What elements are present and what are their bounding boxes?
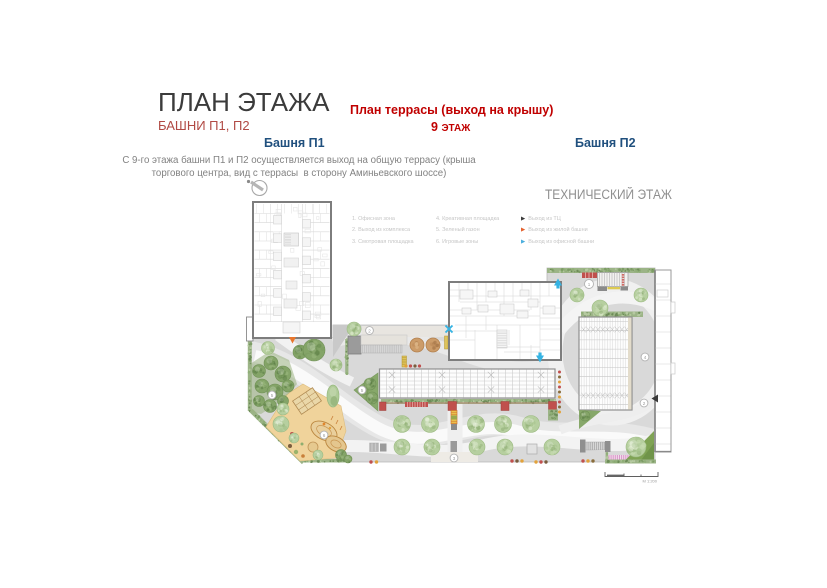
svg-text:2: 2 <box>368 328 371 333</box>
svg-text:4: 4 <box>644 355 647 360</box>
svg-text:М 1:200: М 1:200 <box>643 479 658 484</box>
svg-text:5: 5 <box>361 388 364 393</box>
svg-text:5: 5 <box>271 393 274 398</box>
svg-text:2: 2 <box>643 401 646 406</box>
svg-text:3: 3 <box>453 456 456 461</box>
svg-text:1: 1 <box>588 282 591 287</box>
svg-text:6: 6 <box>323 433 326 438</box>
